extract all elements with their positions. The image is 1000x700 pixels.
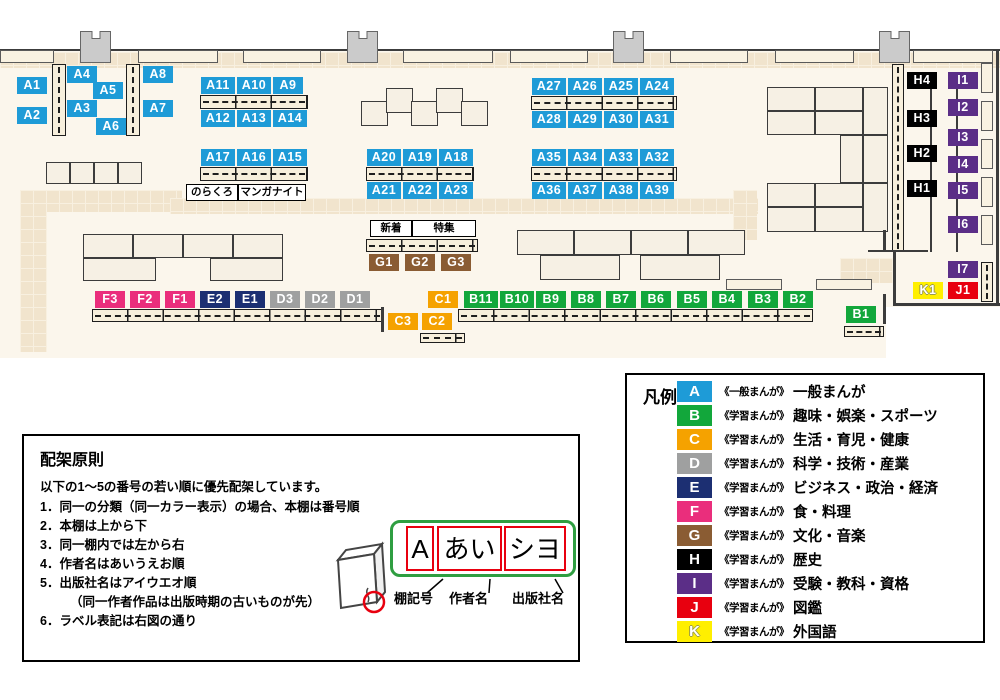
shelf-label-F3: F3: [95, 291, 125, 308]
legend-series: 《学習まんが》: [719, 600, 789, 615]
shelf-label-H1: H1: [907, 180, 937, 197]
shelf-block: [815, 111, 863, 135]
shelf-label-G1: G1: [369, 254, 399, 271]
shelf-block: [631, 230, 688, 255]
legend-category: 趣味・娯楽・スポーツ: [793, 405, 938, 426]
wall-segment: [981, 139, 993, 169]
wall-line: [868, 250, 928, 252]
legend-category: 生活・育児・健康: [793, 429, 909, 450]
shelf-label-A5: A5: [93, 82, 123, 99]
shelf-block: [863, 135, 888, 183]
legend-chip-C: C: [677, 429, 712, 450]
legend-category: 外国語: [793, 621, 837, 642]
legend-series: 《学習まんが》: [719, 504, 789, 519]
shelf-label-A29: A29: [568, 111, 602, 128]
shelf-label-B11: B11: [464, 291, 498, 308]
shelf-label-A11: A11: [201, 77, 235, 94]
legend-chip-D: D: [677, 453, 712, 474]
wall-segment: [981, 63, 993, 93]
shelf-label-B7: B7: [606, 291, 636, 308]
shelf-unit: [126, 64, 140, 136]
shelf-unit: [892, 64, 904, 252]
shelf-label-A7: A7: [143, 100, 173, 117]
wall-segment: [816, 279, 872, 290]
shelf-unit: [92, 309, 383, 322]
shelf-block: [70, 162, 94, 184]
shelf-block: [815, 183, 863, 207]
shelf-label-A19: A19: [403, 149, 437, 166]
shelf-label-B3: B3: [748, 291, 778, 308]
shelf-label-G2: G2: [405, 254, 435, 271]
shelf-label-I1: I1: [948, 72, 978, 89]
shelf-label-A9: A9: [273, 77, 303, 94]
map-tag: 新着: [370, 220, 412, 237]
shelf-block: [183, 234, 233, 258]
wall-segment: [981, 177, 993, 207]
shelf-label-A21: A21: [367, 182, 401, 199]
shelf-label-A22: A22: [403, 182, 437, 199]
legend-row: H《学習まんが》歴史: [677, 549, 938, 570]
legend-series: 《学習まんが》: [719, 456, 789, 471]
wall-segment: [726, 279, 782, 290]
shelf-block: [840, 135, 863, 183]
principles-intro: 以下の1～5の番号の若い順に優先配架しています。: [40, 476, 327, 495]
principles-item: （同一作者作品は出版時期の古いものが先）: [40, 593, 370, 612]
wall-segment: [403, 50, 493, 63]
legend-chip-K: K: [677, 621, 712, 642]
shelf-label-A1: A1: [17, 77, 47, 94]
wall-line: [996, 49, 999, 306]
shelf-label-A14: A14: [273, 110, 307, 127]
legend-row: J《学習まんが》図鑑: [677, 597, 938, 618]
shelf-label-A6: A6: [96, 118, 126, 135]
principles-item: 4．作者名はあいうえお順: [40, 555, 370, 574]
wall-line: [893, 303, 1000, 306]
legend-series: 《学習まんが》: [719, 480, 789, 495]
shelf-label-A23: A23: [439, 182, 473, 199]
shelf-block: [815, 207, 863, 232]
legend-series: 《一般まんが》: [719, 384, 789, 399]
shelf-label-A37: A37: [568, 182, 602, 199]
pillar: [613, 31, 644, 63]
shelf-label-E1: E1: [235, 291, 265, 308]
shelf-label-A27: A27: [532, 78, 566, 95]
map-tag: 特集: [412, 220, 476, 237]
principles-item: 3．同一棚内では左から右: [40, 536, 370, 555]
shelf-label-F1: F1: [165, 291, 195, 308]
shelf-label-A39: A39: [640, 182, 674, 199]
shelf-block: [863, 87, 888, 135]
legend-row: G《学習まんが》文化・音楽: [677, 525, 938, 546]
principles-item: 1．同一の分類（同一カラー表示）の場合、本棚は番号順: [40, 498, 370, 517]
shelf-block: [118, 162, 142, 184]
shelf-label-G3: G3: [441, 254, 471, 271]
legend-chip-J: J: [677, 597, 712, 618]
shelf-unit: [531, 167, 677, 181]
shelf-label-B8: B8: [571, 291, 601, 308]
label-box: A: [406, 526, 434, 571]
shelf-unit: [844, 326, 884, 337]
legend-category: 文化・音楽: [793, 525, 866, 546]
shelf-unit: [420, 333, 465, 343]
legend-row: F《学習まんが》食・料理: [677, 501, 938, 522]
legend-title: 凡例: [643, 383, 677, 408]
shelf-label-A13: A13: [237, 110, 271, 127]
legend-chip-H: H: [677, 549, 712, 570]
legend-series: 《学習まんが》: [719, 408, 789, 423]
wall-segment: [670, 50, 748, 63]
wall-segment: [138, 50, 218, 63]
shelf-label-C2: C2: [422, 313, 452, 330]
shelf-block: [767, 111, 815, 135]
shelf-unit: [366, 167, 474, 181]
shelf-label-A8: A8: [143, 66, 173, 83]
book-icon: [324, 538, 394, 623]
principles-panel: 配架原則 以下の1～5の番号の若い順に優先配架しています。 1．同一の分類（同一…: [22, 434, 580, 662]
wall-segment: [0, 50, 54, 63]
shelf-label-B2: B2: [783, 291, 813, 308]
shelf-block: [640, 255, 720, 280]
legend-category: ビジネス・政治・経済: [793, 477, 938, 498]
wall-segment: [981, 101, 993, 131]
pillar: [80, 31, 111, 63]
shelf-block: [361, 101, 388, 126]
shelf-label-B10: B10: [500, 291, 534, 308]
shelf-block: [133, 234, 183, 258]
shelf-label-A4: A4: [67, 66, 97, 83]
shelf-block: [46, 162, 70, 184]
legend-series: 《学習まんが》: [719, 432, 789, 447]
callout-label: 作者名: [449, 588, 488, 607]
shelf-label-E2: E2: [200, 291, 230, 308]
shelf-block: [83, 234, 133, 258]
shelf-label-D3: D3: [270, 291, 300, 308]
legend-row: C《学習まんが》生活・育児・健康: [677, 429, 938, 450]
legend-category: 受験・教科・資格: [793, 573, 909, 594]
shelf-label-A16: A16: [237, 149, 271, 166]
shelf-block: [815, 87, 863, 111]
shelf-label-A35: A35: [532, 149, 566, 166]
legend-category: 科学・技術・産業: [793, 453, 909, 474]
shelf-block: [436, 88, 463, 113]
shelf-label-A18: A18: [439, 149, 473, 166]
shelf-label-A36: A36: [532, 182, 566, 199]
wall-segment: [913, 50, 993, 63]
shelf-unit: [200, 167, 308, 181]
shelf-label-A30: A30: [604, 111, 638, 128]
shelf-label-A12: A12: [201, 110, 235, 127]
shelf-label-A2: A2: [17, 107, 47, 124]
shelf-label-A31: A31: [640, 111, 674, 128]
shelf-label-A17: A17: [201, 149, 235, 166]
shelf-label-A3: A3: [67, 100, 97, 117]
shelf-label-B5: B5: [677, 291, 707, 308]
principles-title: 配架原則: [40, 446, 104, 470]
legend-chip-F: F: [677, 501, 712, 522]
shelf-unit: [981, 262, 993, 302]
shelf-label-K1: K1: [913, 282, 943, 299]
shelf-label-B4: B4: [712, 291, 742, 308]
wall-segment: [243, 50, 321, 63]
label-diagram-frame: Aあいシヨ: [390, 520, 576, 577]
wall-line: [930, 72, 932, 252]
map-tag: マンガナイト: [238, 184, 306, 201]
label-box: あい: [437, 526, 502, 571]
wall-line: [893, 250, 896, 306]
shelf-label-I3: I3: [948, 129, 978, 146]
shelf-label-A10: A10: [237, 77, 271, 94]
shelf-label-I5: I5: [948, 182, 978, 199]
shelf-block: [767, 87, 815, 111]
wall-segment: [510, 50, 588, 63]
map-tag: のらくろ: [186, 184, 238, 201]
shelf-unit: [52, 64, 66, 136]
legend-chip-G: G: [677, 525, 712, 546]
shelf-block: [83, 258, 156, 281]
legend-row: A《一般まんが》一般まんが: [677, 381, 938, 402]
shelf-label-H2: H2: [907, 145, 937, 162]
legend-category: 一般まんが: [793, 381, 866, 402]
shelf-label-A20: A20: [367, 149, 401, 166]
principles-item: 6．ラベル表記は右図の通り: [40, 612, 370, 631]
shelf-label-J1: J1: [948, 282, 978, 299]
shelf-block: [540, 255, 620, 280]
legend-series: 《学習まんが》: [719, 624, 789, 639]
shelf-label-I4: I4: [948, 156, 978, 173]
shelf-block: [386, 88, 413, 113]
legend-row: D《学習まんが》科学・技術・産業: [677, 453, 938, 474]
shelf-label-A38: A38: [604, 182, 638, 199]
wall-segment: [981, 215, 993, 245]
legend-row: K《学習まんが》外国語: [677, 621, 938, 642]
pillar: [347, 31, 378, 63]
shelf-label-A26: A26: [568, 78, 602, 95]
shelf-block: [233, 234, 283, 258]
shelf-block: [767, 183, 815, 207]
legend-chip-B: B: [677, 405, 712, 426]
legend-panel: 凡例 A《一般まんが》一般まんがB《学習まんが》趣味・娯楽・スポーツC《学習まん…: [625, 373, 985, 643]
principles-list: 1．同一の分類（同一カラー表示）の場合、本棚は番号順2．本棚は上から下3．同一棚…: [40, 498, 370, 631]
shelf-label-B9: B9: [536, 291, 566, 308]
label-box: シヨ: [504, 526, 566, 571]
shelf-label-A33: A33: [604, 149, 638, 166]
shelf-block: [461, 101, 488, 126]
legend-rows: A《一般まんが》一般まんがB《学習まんが》趣味・娯楽・スポーツC《学習まんが》生…: [677, 381, 938, 645]
shelf-label-B1: B1: [846, 306, 876, 323]
wall-segment: [775, 50, 854, 63]
shelf-label-H4: H4: [907, 72, 937, 89]
shelf-label-A15: A15: [273, 149, 307, 166]
shelf-label-A28: A28: [532, 111, 566, 128]
floor-map: A1A2A4A5A3A6A8A7A11A10A9A12A13A14A17A16A…: [0, 0, 1000, 420]
shelf-label-I7: I7: [948, 261, 978, 278]
legend-row: E《学習まんが》ビジネス・政治・経済: [677, 477, 938, 498]
shelf-unit: [200, 95, 308, 109]
floor-edge: [886, 307, 1000, 359]
shelf-block: [574, 230, 631, 255]
principles-item: 5．出版社名はアイウエオ順: [40, 574, 370, 593]
shelf-block: [863, 183, 888, 232]
legend-category: 歴史: [793, 549, 822, 570]
shelf-label-A32: A32: [640, 149, 674, 166]
shelf-label-D1: D1: [340, 291, 370, 308]
callout-label: 棚記号: [394, 588, 433, 607]
shelf-label-C3: C3: [388, 313, 418, 330]
shelf-block: [94, 162, 118, 184]
shelf-unit: [458, 309, 813, 322]
shelf-label-C1: C1: [428, 291, 458, 308]
shelf-unit: [531, 96, 677, 110]
legend-series: 《学習まんが》: [719, 528, 789, 543]
shelf-block: [517, 230, 574, 255]
shelf-label-I2: I2: [948, 99, 978, 116]
shelf-block: [688, 230, 745, 255]
legend-category: 図鑑: [793, 597, 822, 618]
wall-line: [381, 307, 384, 332]
legend-chip-A: A: [677, 381, 712, 402]
legend-series: 《学習まんが》: [719, 576, 789, 591]
shelf-label-A34: A34: [568, 149, 602, 166]
floor-hatch: [20, 190, 47, 352]
legend-chip-E: E: [677, 477, 712, 498]
pillar: [879, 31, 910, 63]
shelf-label-A25: A25: [604, 78, 638, 95]
legend-category: 食・料理: [793, 501, 851, 522]
legend-series: 《学習まんが》: [719, 552, 789, 567]
shelf-block: [767, 207, 815, 232]
wall-line: [883, 230, 886, 252]
shelf-label-F2: F2: [130, 291, 160, 308]
legend-chip-I: I: [677, 573, 712, 594]
shelf-block: [411, 101, 438, 126]
legend-row: I《学習まんが》受験・教科・資格: [677, 573, 938, 594]
shelf-label-A24: A24: [640, 78, 674, 95]
page: A1A2A4A5A3A6A8A7A11A10A9A12A13A14A17A16A…: [0, 0, 1000, 700]
callout-label: 出版社名: [512, 588, 564, 607]
shelf-label-H3: H3: [907, 110, 937, 127]
shelf-label-D2: D2: [305, 291, 335, 308]
shelf-label-B6: B6: [641, 291, 671, 308]
legend-row: B《学習まんが》趣味・娯楽・スポーツ: [677, 405, 938, 426]
shelf-label-I6: I6: [948, 216, 978, 233]
shelf-unit: [366, 239, 478, 252]
principles-item: 2．本棚は上から下: [40, 517, 370, 536]
shelf-block: [210, 258, 283, 281]
